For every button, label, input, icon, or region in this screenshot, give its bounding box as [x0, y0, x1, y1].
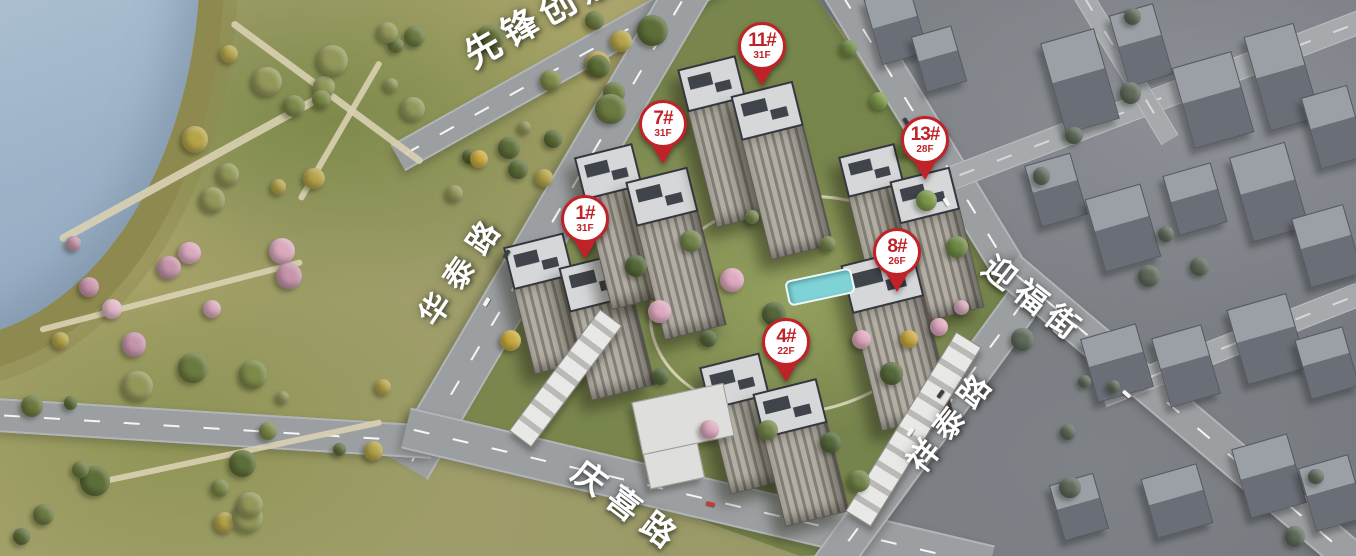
- tree: [276, 391, 289, 404]
- building-pin-1[interactable]: 1# 31F: [559, 195, 611, 265]
- tree: [239, 360, 267, 388]
- tree: [211, 479, 229, 497]
- tree: [1120, 82, 1142, 104]
- tree: [182, 126, 209, 153]
- tree: [700, 330, 717, 347]
- pin-circle: 13# 28F: [901, 116, 949, 164]
- tree: [333, 443, 346, 456]
- tree: [317, 45, 348, 76]
- tree: [203, 300, 221, 318]
- tree: [276, 263, 302, 289]
- pin-circle: 8# 26F: [873, 228, 921, 276]
- tree: [157, 256, 180, 279]
- tree: [52, 332, 69, 349]
- tree: [1011, 328, 1033, 350]
- tree: [237, 492, 262, 517]
- tree: [1078, 375, 1091, 388]
- tree: [680, 230, 702, 252]
- building-pin-7[interactable]: 7# 31F: [637, 100, 689, 170]
- tree: [880, 362, 903, 385]
- tree: [1158, 226, 1174, 242]
- tree: [700, 420, 719, 439]
- tree: [64, 396, 78, 410]
- tree: [544, 130, 561, 147]
- tree: [1308, 469, 1323, 484]
- tree: [303, 168, 324, 189]
- tree: [252, 67, 281, 96]
- tree: [220, 45, 238, 63]
- tree: [1138, 265, 1160, 287]
- masterplan-aerial-view: 先锋创意 华泰路 迎福街 祥泰路 庆喜路 1# 31F 4# 22F 7# 31…: [0, 0, 1356, 556]
- tree: [720, 268, 744, 292]
- tree: [870, 92, 888, 110]
- tree: [122, 371, 152, 401]
- tree: [508, 160, 527, 179]
- tree: [200, 187, 226, 213]
- tree: [1107, 380, 1120, 393]
- tree: [122, 332, 146, 356]
- tree: [79, 277, 99, 297]
- tree: [384, 78, 398, 92]
- tree: [102, 299, 122, 319]
- tree: [229, 450, 256, 477]
- tree: [271, 179, 287, 195]
- tree: [312, 90, 331, 109]
- tree: [1285, 526, 1305, 546]
- tree: [1033, 167, 1050, 184]
- tree: [217, 163, 239, 185]
- tree: [930, 318, 948, 336]
- tree: [1059, 477, 1080, 498]
- building-pin-8[interactable]: 8# 26F: [871, 228, 923, 298]
- pin-circle: 4# 22F: [762, 318, 810, 366]
- tree: [446, 185, 463, 202]
- pin-circle: 11# 31F: [738, 22, 786, 70]
- tree: [540, 70, 561, 91]
- tree: [364, 441, 384, 461]
- tree: [269, 238, 294, 263]
- tree: [1065, 127, 1082, 144]
- tree: [375, 379, 390, 394]
- tree: [595, 94, 625, 124]
- tree: [745, 210, 759, 224]
- pin-circle: 7# 31F: [639, 100, 687, 148]
- tree: [840, 40, 857, 57]
- tree: [178, 242, 200, 264]
- tree: [66, 236, 81, 251]
- pin-circle: 1# 31F: [561, 195, 609, 243]
- building-pin-11[interactable]: 11# 31F: [736, 22, 788, 92]
- tree: [610, 30, 632, 52]
- tree: [652, 368, 669, 385]
- tree: [178, 353, 207, 382]
- building-pin-4[interactable]: 4# 22F: [760, 318, 812, 388]
- building-pin-13[interactable]: 13# 28F: [899, 116, 951, 186]
